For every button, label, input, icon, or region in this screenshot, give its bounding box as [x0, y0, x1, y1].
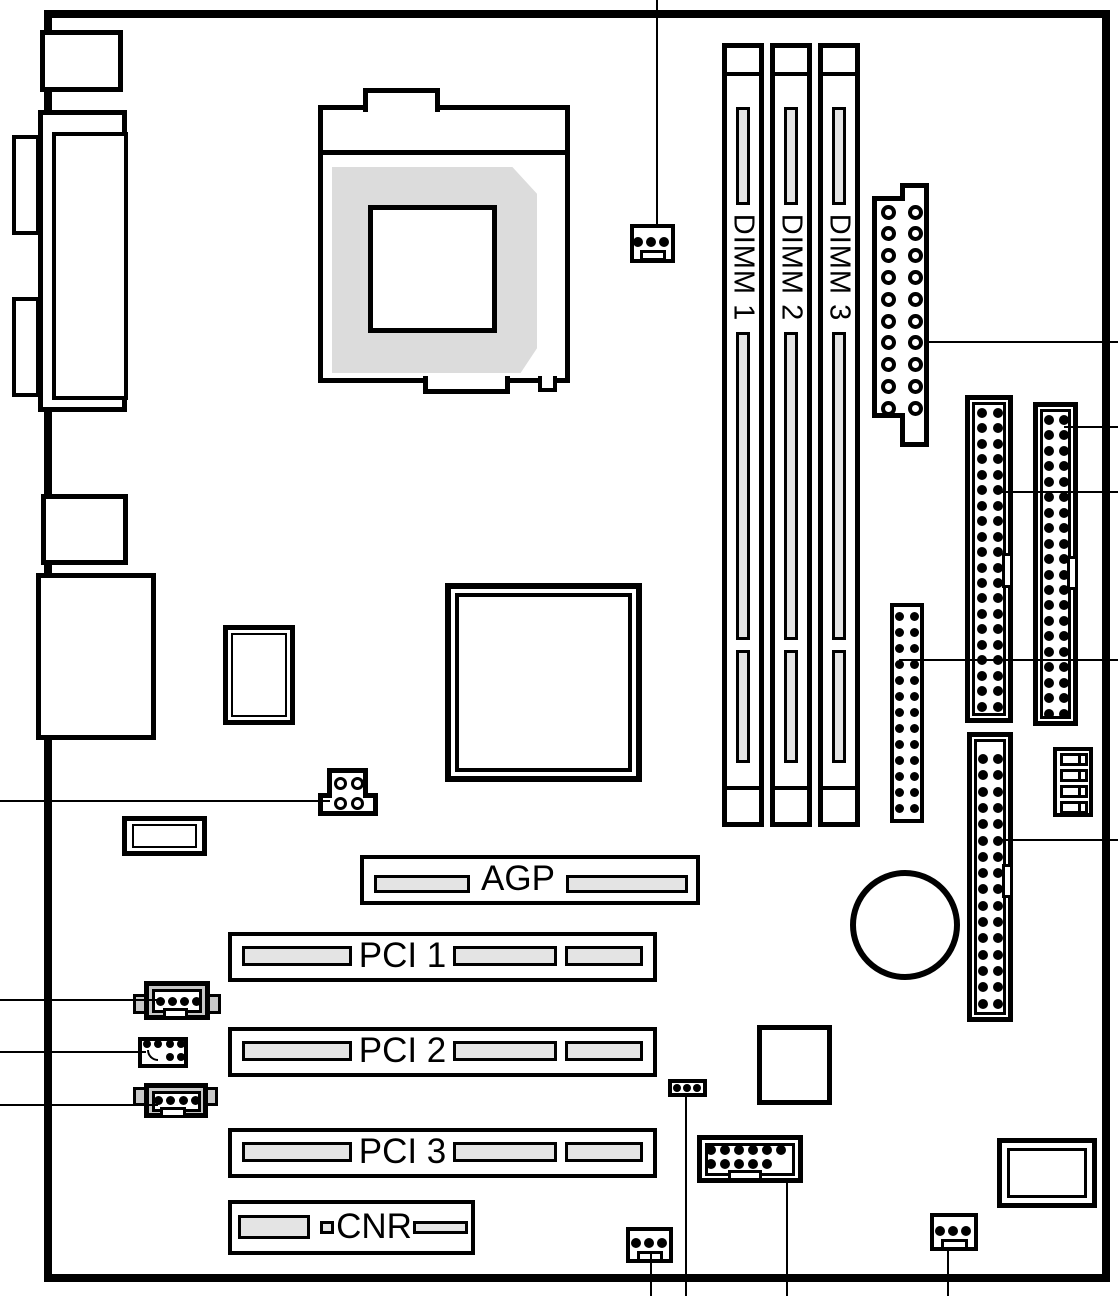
io-audio-lan-block	[36, 573, 156, 740]
io-ps2-port	[40, 30, 123, 92]
dip-switch-2	[1060, 769, 1088, 782]
dimm2-label: DIMM 2	[775, 214, 808, 322]
motherboard-diagram: DIMM 1 DIMM 2 DIMM 3	[0, 0, 1118, 1296]
callout-front-panel	[786, 1180, 788, 1296]
pci1-slot-bar	[565, 946, 643, 966]
dimm3-slot-bar	[832, 332, 846, 640]
agp-label-area: AGP	[470, 855, 566, 903]
callout-aux-audio	[0, 1104, 158, 1106]
floppy-key-notch	[1002, 864, 1013, 898]
atx-power-bottom-tab	[900, 413, 929, 447]
callout-signal-header	[899, 659, 1118, 661]
io-controller-chip-inner	[231, 633, 287, 717]
fan-br-key-notch	[941, 1239, 968, 1250]
agp-slot-bar	[374, 875, 470, 893]
dimm3-bottom-latch-line	[818, 786, 860, 790]
dimm1-label-area: DIMM 1	[722, 200, 764, 335]
callout-seven-pin-header	[0, 1051, 146, 1053]
callout-atx-power	[928, 341, 1118, 343]
aux-audio-key-notch	[160, 1107, 186, 1118]
dimm3-label-area: DIMM 3	[818, 200, 860, 335]
southbridge-chip	[757, 1025, 832, 1105]
cpu-die	[368, 205, 497, 333]
ide1-inner	[972, 402, 1006, 716]
cpu-fan-connector-key-notch	[640, 250, 666, 261]
callout-cpu-fan	[656, 0, 658, 224]
bottom-right-connector-box-inner	[1007, 1148, 1087, 1198]
pci3-slot-bar	[242, 1142, 352, 1162]
io-parallel-port-inner	[52, 132, 128, 400]
io-serial-port-1	[12, 135, 40, 235]
cpu-socket-divider	[318, 150, 570, 155]
aux12v-power-connector-upper	[327, 768, 368, 798]
dimm2-bottom-latch-line	[770, 786, 812, 790]
pci3-label: PCI 3	[359, 1132, 447, 1172]
pci3-slot-bar	[565, 1142, 643, 1162]
pci1-label-area: PCI 1	[352, 932, 453, 980]
cpu-socket-bottom-tab-1	[423, 376, 510, 394]
dimm2-slot-bar	[784, 332, 798, 640]
io-usb-port	[41, 494, 128, 565]
dimm1-slot-bar	[736, 332, 750, 640]
dimm2-top-latch-line	[770, 72, 812, 76]
callout-ide1	[999, 491, 1118, 493]
callout-jumper	[685, 1097, 687, 1296]
pci1-slot-bar	[453, 946, 557, 966]
signal-header	[890, 603, 924, 823]
cpu-socket-top-tab	[363, 88, 440, 112]
cnr-slot-bar	[238, 1215, 310, 1239]
dip-switch-3	[1060, 785, 1088, 798]
dip-switch-4	[1060, 801, 1088, 814]
cd-audio-key-notch	[163, 1008, 188, 1019]
pci3-label-area: PCI 3	[352, 1128, 453, 1176]
dimm2-slot-bar	[784, 107, 798, 205]
dimm1-bottom-latch-line	[722, 786, 764, 790]
cnr-slot-bar	[413, 1221, 468, 1234]
pci2-slot-bar	[565, 1041, 643, 1061]
io-serial-port-2	[12, 297, 40, 397]
pci2-label-area: PCI 2	[352, 1027, 453, 1075]
dimm2-slot-bar	[784, 650, 798, 763]
callout-fan-br	[947, 1247, 949, 1296]
callout-aux12v	[0, 800, 330, 802]
pci2-slot-bar	[453, 1041, 557, 1061]
cnr-slot-key	[320, 1221, 334, 1234]
dimm3-top-latch-line	[818, 72, 860, 76]
front-panel-key-notch	[728, 1170, 762, 1181]
dimm1-slot-bar	[736, 650, 750, 763]
small-connector-box-inner	[132, 824, 197, 848]
pci3-slot-bar	[453, 1142, 557, 1162]
pci1-slot-bar	[242, 946, 352, 966]
dimm1-slot-bar	[736, 107, 750, 205]
config-jumper	[668, 1079, 707, 1097]
ide2-key-notch	[1067, 556, 1078, 590]
dimm3-slot-bar	[832, 650, 846, 763]
cmos-battery	[850, 870, 960, 980]
atx-power-connector	[872, 196, 929, 418]
dimm1-label: DIMM 1	[727, 214, 760, 322]
callout-floppy	[999, 839, 1118, 841]
cnr-label: CNR	[336, 1207, 412, 1247]
cnr-label-area: CNR	[334, 1200, 414, 1253]
callout-ide2	[1064, 426, 1118, 428]
agp-label: AGP	[481, 859, 555, 899]
dimm2-label-area: DIMM 2	[770, 200, 812, 335]
pci2-label: PCI 2	[359, 1031, 447, 1071]
callout-cd-audio	[0, 999, 157, 1001]
atx-power-top-tab	[900, 183, 929, 201]
pci1-label: PCI 1	[359, 936, 447, 976]
northbridge-chip-inner	[455, 593, 632, 772]
callout-fan-bl	[650, 1253, 652, 1296]
dimm3-label: DIMM 3	[823, 214, 856, 322]
dimm1-top-latch-line	[722, 72, 764, 76]
dip-switch-1	[1060, 753, 1088, 766]
ide1-key-notch	[1002, 553, 1013, 588]
cpu-socket-bottom-tab-2	[538, 376, 557, 392]
agp-slot-bar	[566, 875, 688, 893]
dimm3-slot-bar	[832, 107, 846, 205]
pci2-slot-bar	[242, 1041, 352, 1061]
